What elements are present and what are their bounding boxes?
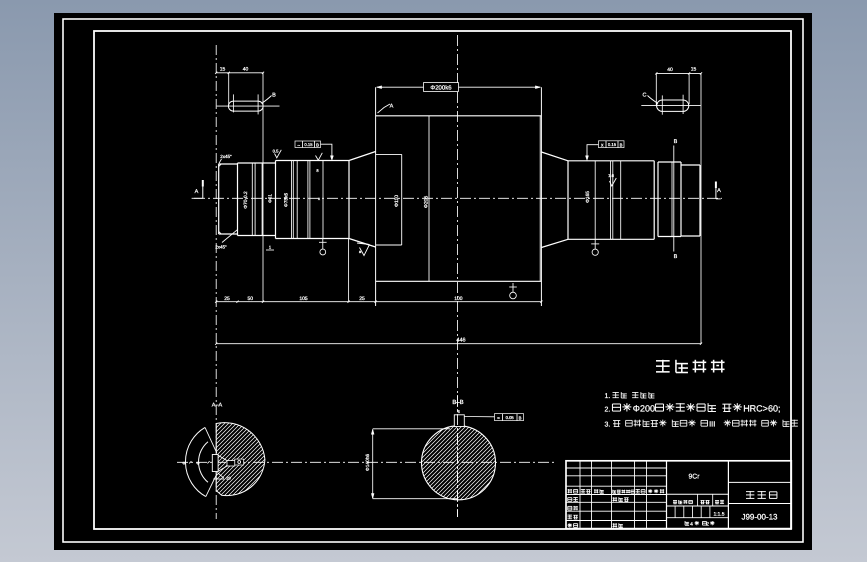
- svg-text:20: 20: [226, 475, 231, 480]
- svg-text:2x45°: 2x45°: [215, 245, 227, 250]
- svg-text:Φ70-0.2: Φ70-0.2: [243, 191, 249, 209]
- svg-text:B: B: [674, 254, 678, 260]
- svg-text:A–A: A–A: [212, 403, 223, 409]
- svg-text:Φ140h6: Φ140h6: [365, 454, 371, 471]
- svg-text:HRC>60;: HRC>60;: [743, 404, 780, 414]
- svg-text:Φ165: Φ165: [585, 191, 591, 203]
- svg-text:x: x: [318, 196, 320, 201]
- svg-text:105: 105: [299, 296, 308, 302]
- svg-text:25: 25: [224, 296, 230, 302]
- svg-text:B–B: B–B: [452, 399, 463, 406]
- svg-text:15: 15: [691, 67, 697, 73]
- svg-text:Φ78k6: Φ78k6: [284, 193, 290, 208]
- svg-text:B: B: [316, 142, 319, 147]
- svg-text:1:1.5: 1:1.5: [713, 511, 724, 517]
- svg-text:B: B: [674, 139, 678, 145]
- svg-text:0.5: 0.5: [273, 149, 279, 154]
- svg-text:1.6: 1.6: [608, 173, 614, 178]
- svg-text:446: 446: [456, 338, 465, 344]
- svg-text:40: 40: [667, 67, 673, 73]
- svg-text:0.15: 0.15: [608, 142, 617, 147]
- svg-text:25: 25: [359, 296, 365, 302]
- svg-text:50: 50: [248, 296, 254, 302]
- svg-text:0.05: 0.05: [506, 415, 515, 420]
- svg-text:Φ61: Φ61: [267, 194, 272, 203]
- svg-text:2.: 2.: [605, 407, 611, 414]
- svg-text:J99-00-13: J99-00-13: [741, 513, 778, 522]
- svg-text:Φ: Φ: [196, 460, 199, 465]
- svg-text:9Cr: 9Cr: [689, 474, 701, 481]
- svg-text:C: C: [643, 93, 647, 99]
- svg-text:B: B: [519, 415, 522, 420]
- svg-text:~: ~: [297, 143, 300, 149]
- svg-text:A: A: [195, 189, 199, 195]
- svg-text:III: III: [709, 420, 715, 429]
- svg-text:40: 40: [243, 67, 249, 73]
- svg-text:2: 2: [706, 521, 709, 527]
- svg-text:B: B: [272, 93, 276, 99]
- svg-text:15: 15: [220, 67, 226, 73]
- svg-text:Φ200k6: Φ200k6: [430, 85, 452, 92]
- svg-text:100: 100: [454, 296, 463, 302]
- svg-text:0.15: 0.15: [304, 142, 313, 147]
- svg-text:4: 4: [690, 521, 693, 527]
- svg-text:Φ200: Φ200: [633, 404, 655, 414]
- svg-text:Φ110: Φ110: [394, 195, 400, 207]
- svg-text:A: A: [717, 188, 721, 194]
- svg-text:3.: 3.: [605, 422, 611, 429]
- svg-text:1.: 1.: [605, 393, 611, 400]
- svg-text:2x45°: 2x45°: [220, 154, 232, 159]
- svg-text:Φ: Φ: [182, 460, 185, 465]
- svg-text:Φ205: Φ205: [424, 196, 430, 209]
- svg-text:A: A: [390, 104, 394, 110]
- svg-text:B: B: [620, 142, 623, 147]
